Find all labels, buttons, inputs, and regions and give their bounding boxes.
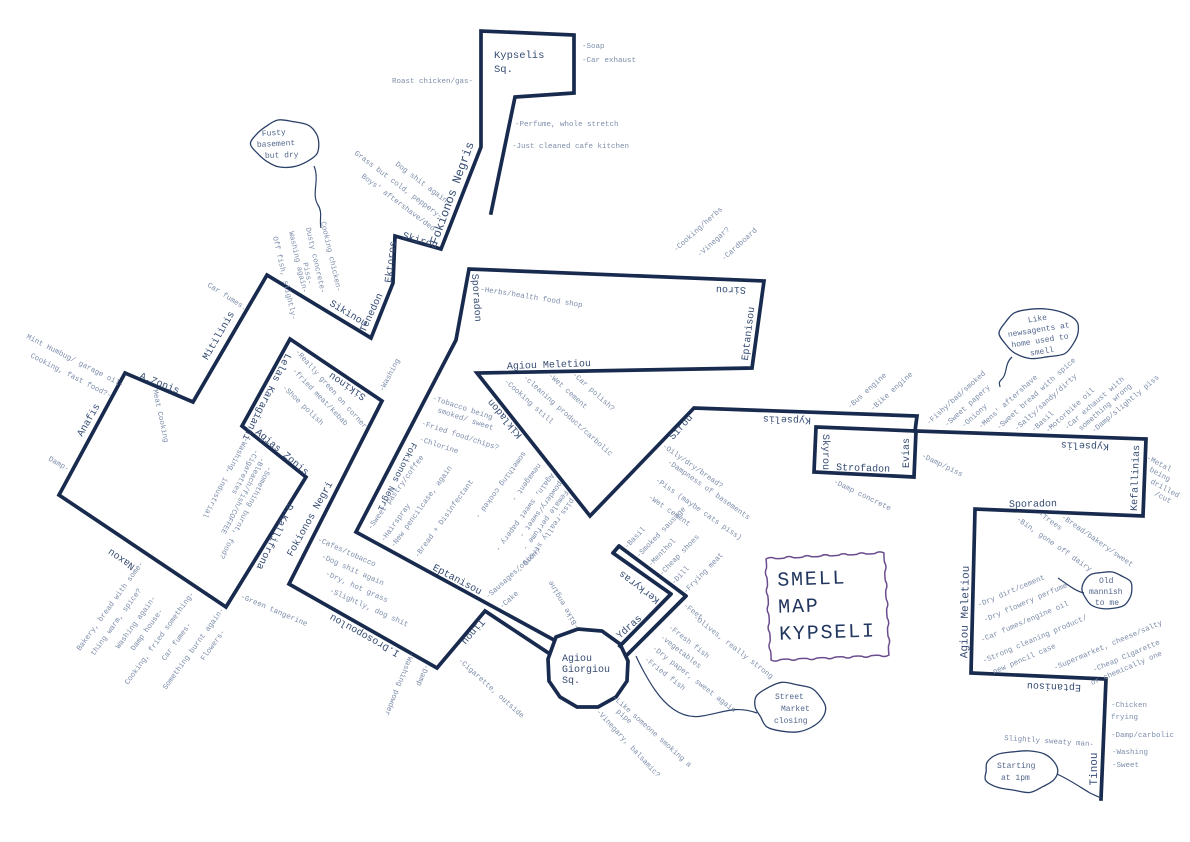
svg-text:Kypselis: Kypselis <box>494 50 544 62</box>
svg-text:Evias: Evias <box>901 438 913 468</box>
svg-text:-Chicken: -Chicken <box>1111 702 1147 710</box>
svg-text:Sporadon: Sporadon <box>1009 498 1057 511</box>
svg-text:Street: Street <box>775 693 804 702</box>
svg-text:Fusty: Fusty <box>262 128 287 139</box>
svg-text:closing: closing <box>774 717 808 726</box>
svg-text:-Soap: -Soap <box>582 43 605 51</box>
svg-text:Agiou: Agiou <box>562 653 592 665</box>
svg-text:to me: to me <box>1095 599 1119 608</box>
svg-text:SMELL: SMELL <box>777 567 847 592</box>
svg-text:Sirou: Sirou <box>716 283 746 296</box>
svg-text:Skyrou: Skyrou <box>819 434 831 470</box>
svg-text:Old: Old <box>1099 577 1114 586</box>
svg-text:at 1pm: at 1pm <box>1001 774 1030 783</box>
svg-text:KYPSELI: KYPSELI <box>779 620 876 646</box>
svg-text:but dry: but dry <box>265 151 299 161</box>
svg-text:MAP: MAP <box>778 595 820 619</box>
svg-text:Starting: Starting <box>997 762 1036 771</box>
svg-text:Kefallinias: Kefallinias <box>1129 445 1143 511</box>
svg-text:frying: frying <box>1111 714 1138 722</box>
svg-text:Roast chicken/gas-: Roast chicken/gas- <box>392 78 473 86</box>
svg-text:-Sweet: -Sweet <box>1112 762 1139 770</box>
svg-text:Tinou: Tinou <box>1089 752 1101 785</box>
svg-text:Kypselis: Kypselis <box>1061 438 1109 452</box>
svg-text:Agiou Meletiou: Agiou Meletiou <box>959 566 973 659</box>
svg-text:Sq.: Sq. <box>494 64 513 76</box>
svg-text:Giorgiou: Giorgiou <box>562 664 610 676</box>
svg-text:Kypselis: Kypselis <box>763 412 811 426</box>
svg-text:Market: Market <box>781 705 810 714</box>
svg-text:mannish: mannish <box>1089 588 1123 597</box>
svg-text:-Damp/carbolic: -Damp/carbolic <box>1111 732 1174 740</box>
svg-text:Strofadon: Strofadon <box>836 462 890 476</box>
svg-text:Eptanisou: Eptanisou <box>1027 679 1081 693</box>
svg-text:-Perfume, whole stretch: -Perfume, whole stretch <box>515 121 619 129</box>
svg-text:-Just cleaned cafe kitchen: -Just cleaned cafe kitchen <box>512 143 629 151</box>
svg-text:-Washing: -Washing <box>1112 749 1148 757</box>
svg-text:Sq.: Sq. <box>562 676 580 687</box>
svg-text:-Car exhaust: -Car exhaust <box>582 57 636 65</box>
